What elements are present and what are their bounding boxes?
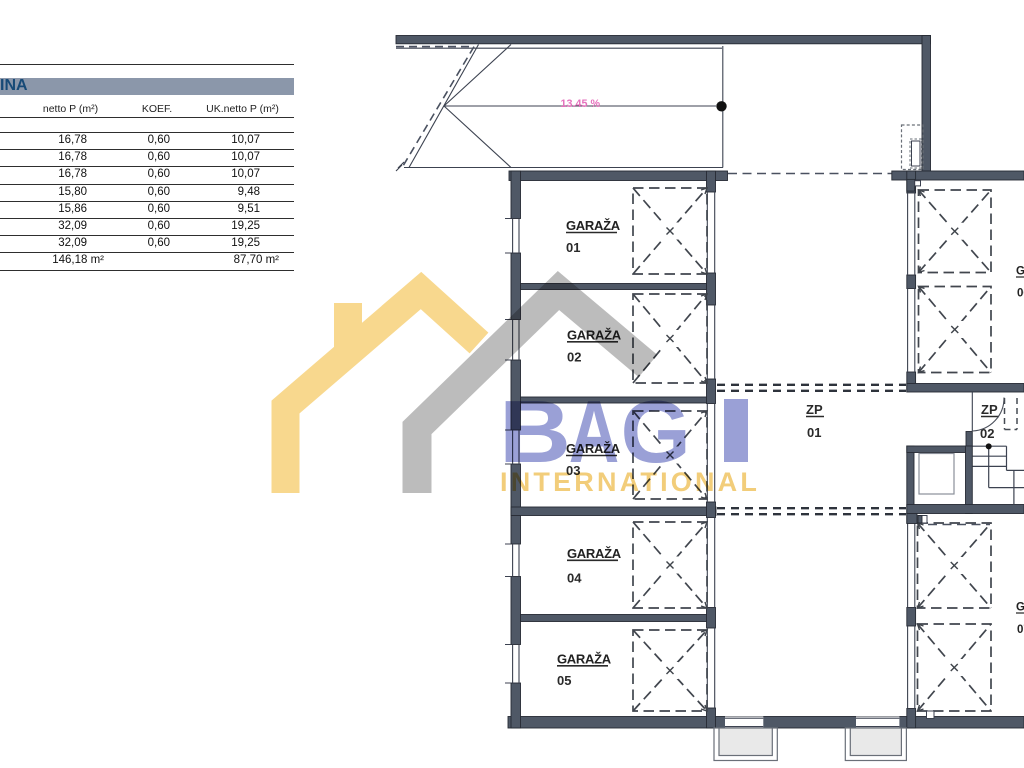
svg-text:INTERNATIONAL: INTERNATIONAL	[500, 467, 760, 497]
